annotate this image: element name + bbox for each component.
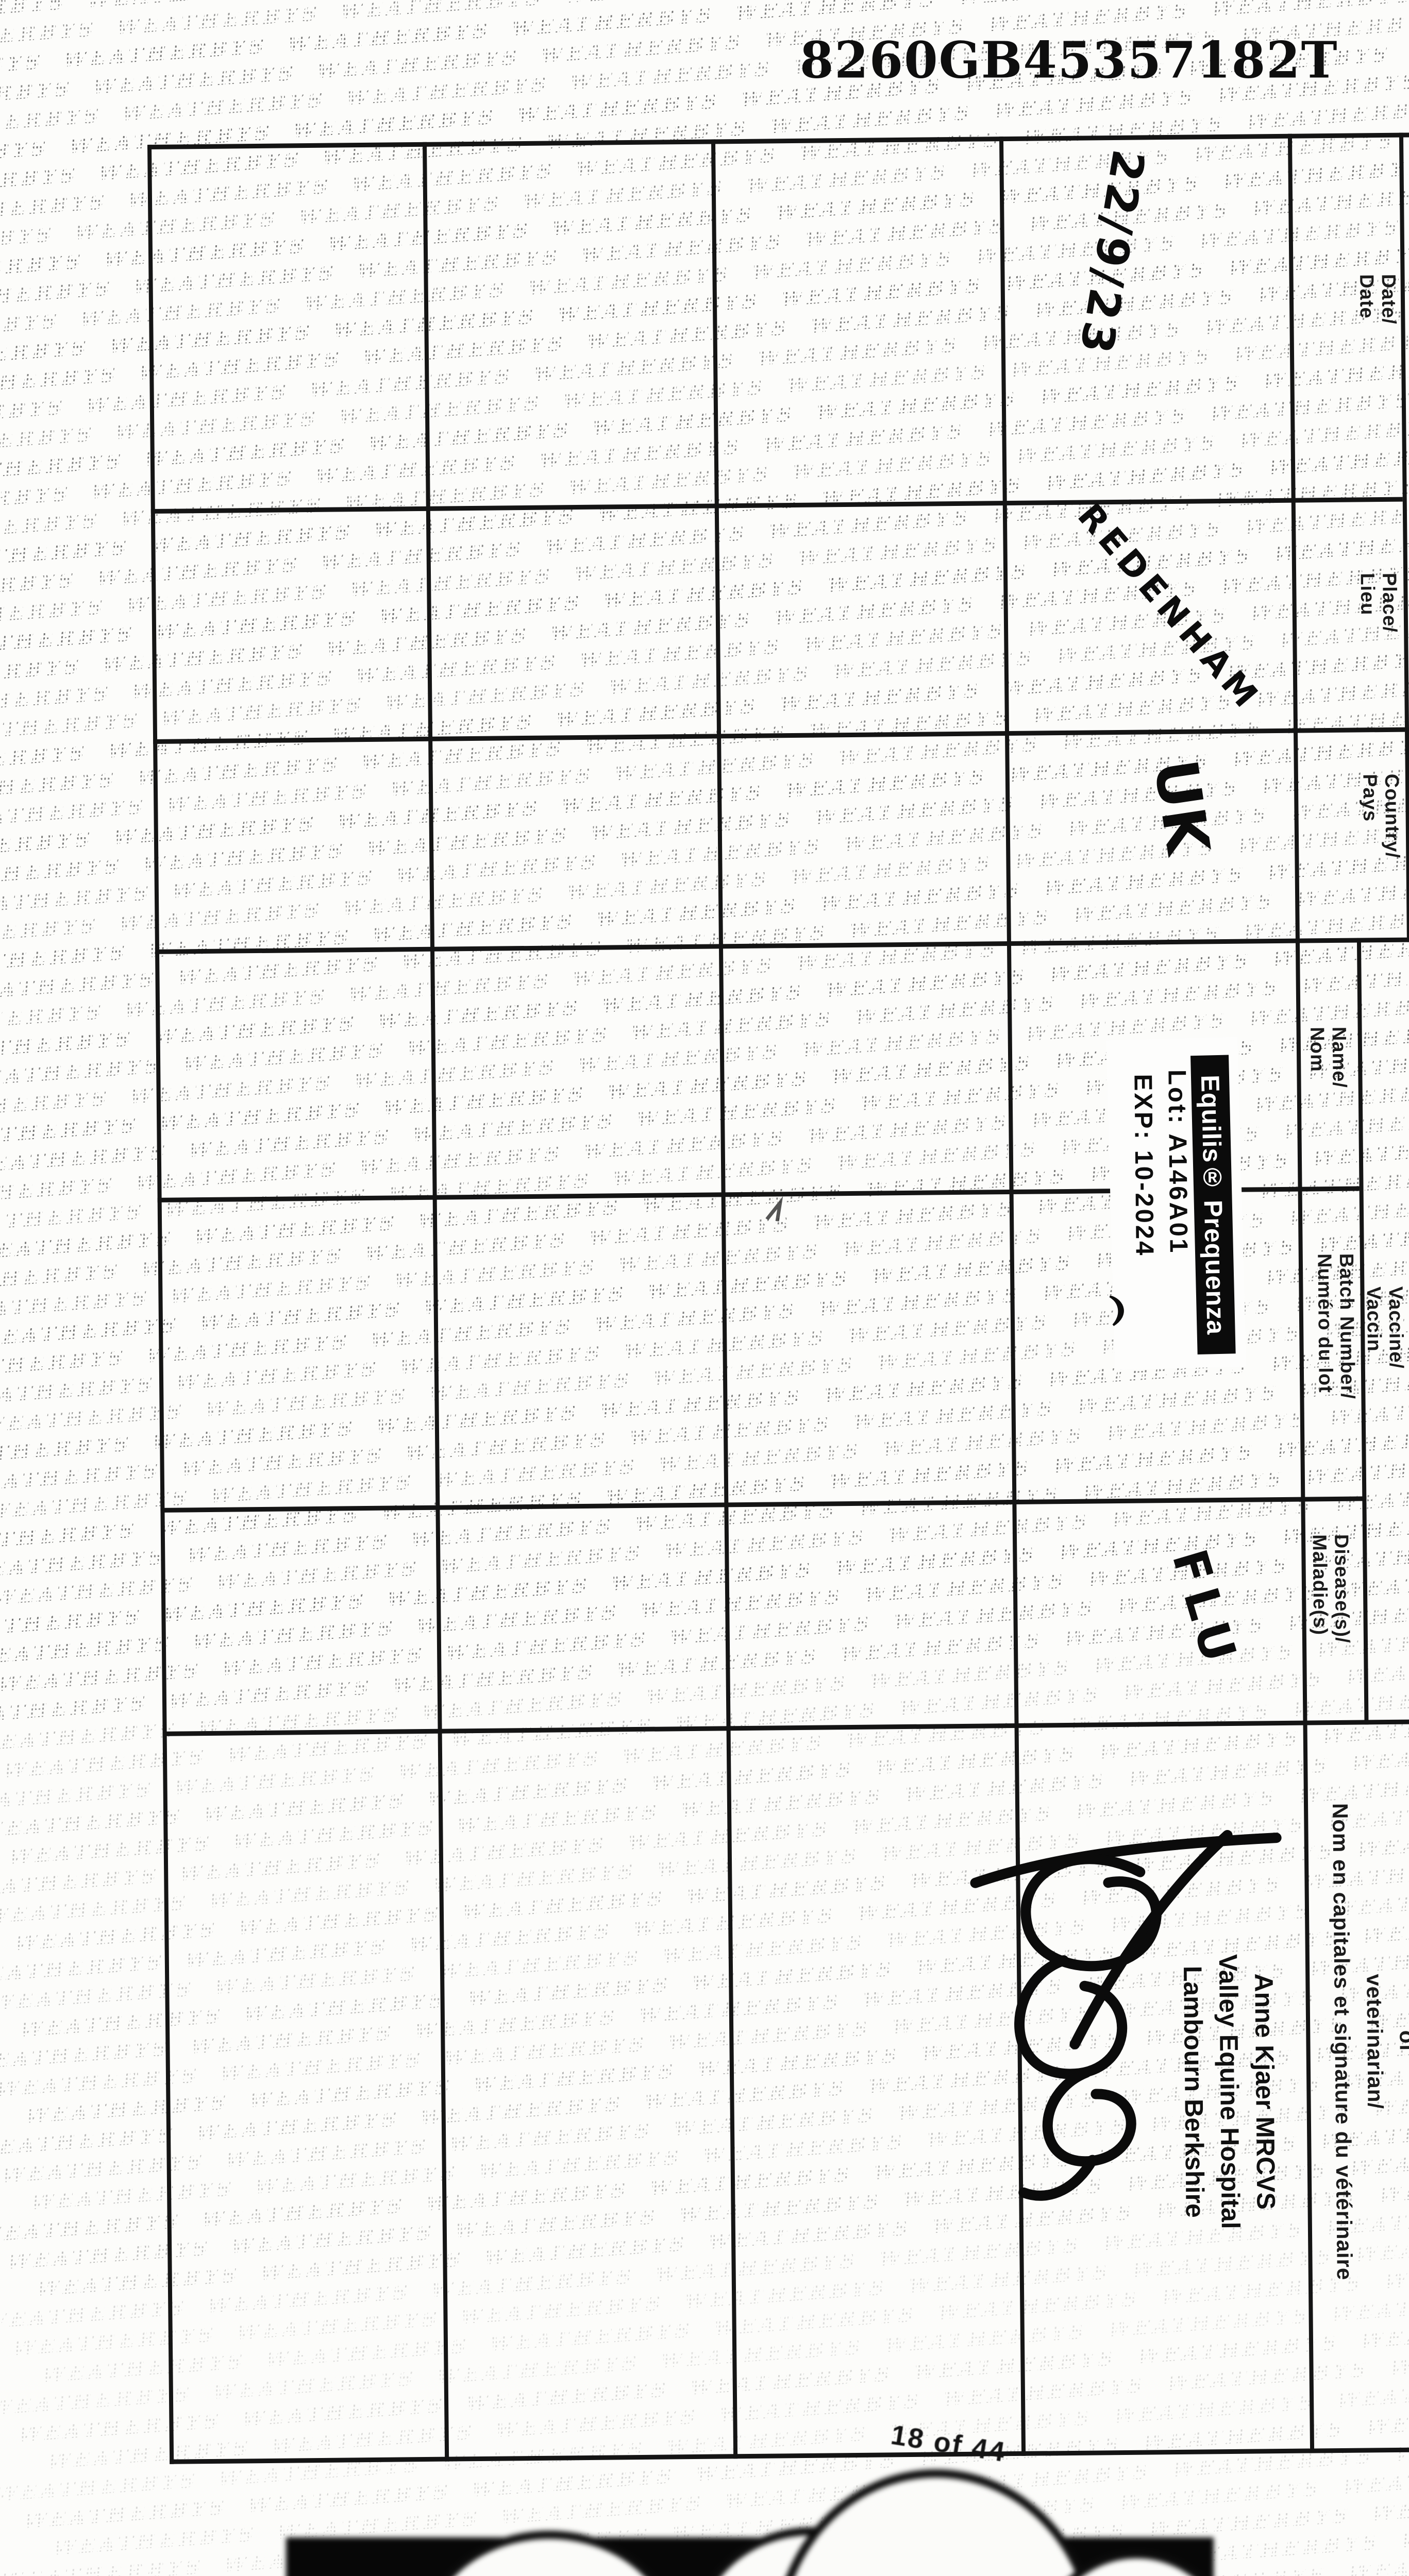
scanned-passport-page: WEATHERBYS WEATHERBYS WEATHERBYS WEATHER…: [0, 0, 1409, 2576]
scan-bump: [773, 2469, 1099, 2576]
document-code: 8260GB45357182T: [800, 31, 1338, 90]
scan-bottom-artifacts: [0, 0, 1409, 2576]
